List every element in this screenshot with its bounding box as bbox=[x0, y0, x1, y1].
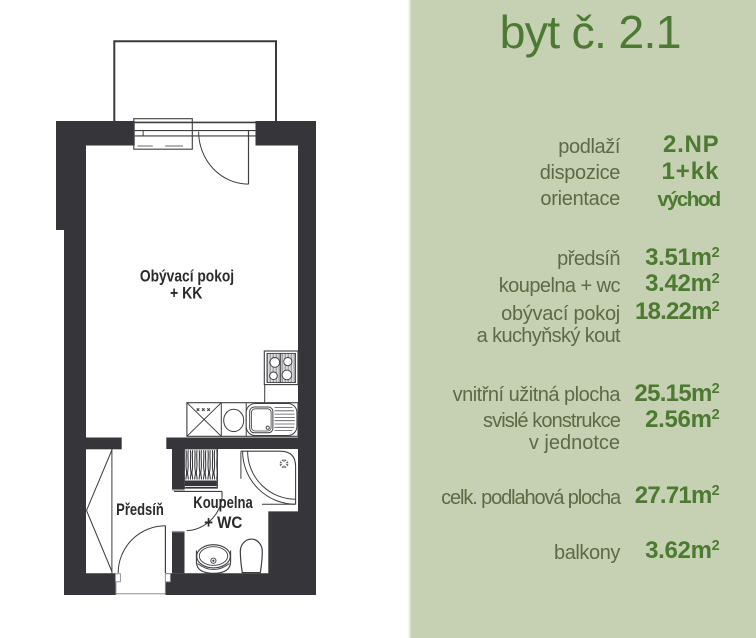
svg-text:+ WC: + WC bbox=[204, 513, 243, 532]
svg-text:Koupelna: Koupelna bbox=[193, 493, 253, 512]
svg-text:+ KK: + KK bbox=[170, 284, 203, 303]
svg-text:Předsíň: Předsíň bbox=[116, 500, 164, 519]
svg-text:Obývací pokoj: Obývací pokoj bbox=[140, 267, 234, 286]
